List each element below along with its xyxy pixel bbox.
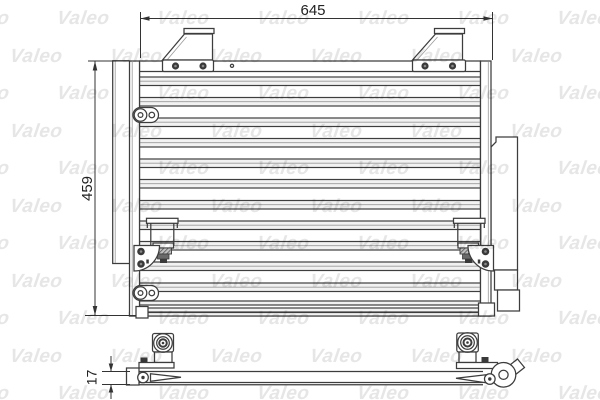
mounting-bracket-right bbox=[413, 29, 466, 72]
dimension-depth: 17 bbox=[84, 356, 131, 399]
condenser-front-view bbox=[113, 29, 520, 319]
receiver-drier bbox=[491, 137, 520, 311]
height-dimension-label: 459 bbox=[79, 176, 96, 201]
mounting-bracket-left bbox=[163, 29, 215, 72]
core-tubes bbox=[130, 61, 492, 316]
bottom-bracket-right bbox=[456, 375, 486, 383]
mounting-lug-lower-left bbox=[133, 286, 159, 301]
side-plate-left bbox=[113, 61, 130, 264]
pipe-port-right bbox=[457, 333, 498, 369]
technical-drawing-canvas: 645 459 17 ValeoValeoValeoValeoValeoVale… bbox=[0, 0, 600, 400]
width-dimension-label: 645 bbox=[300, 2, 325, 19]
pipe-port-left bbox=[139, 334, 174, 369]
receiver-drier-body bbox=[491, 137, 518, 270]
condenser-bottom-view bbox=[127, 333, 525, 387]
dimension-height: 459 bbox=[79, 61, 136, 316]
bottom-end-block-left bbox=[127, 368, 140, 385]
mounting-lug-upper-left bbox=[133, 108, 159, 123]
drier-end-circle bbox=[491, 363, 516, 388]
bottom-bracket-left bbox=[151, 374, 182, 382]
depth-dimension-label: 17 bbox=[84, 370, 100, 386]
condenser-drawing: 645 459 17 bbox=[0, 0, 600, 400]
